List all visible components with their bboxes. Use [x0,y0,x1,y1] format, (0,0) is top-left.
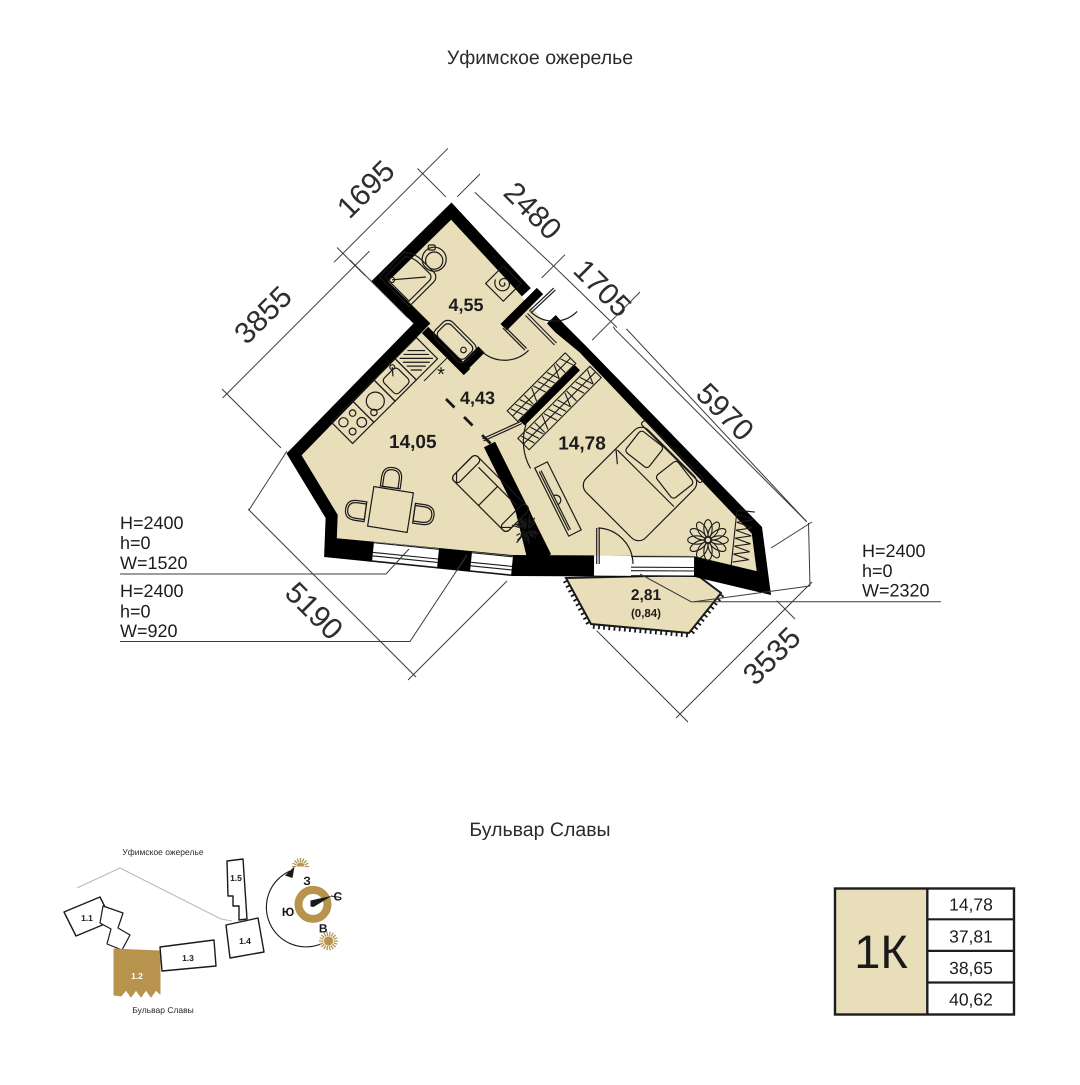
svg-text:1.5: 1.5 [230,873,242,883]
svg-text:Уфимское ожерелье: Уфимское ожерелье [122,847,203,857]
svg-text:Бульвар Славы: Бульвар Славы [132,1005,194,1015]
svg-text:W=1520: W=1520 [120,553,188,573]
svg-text:2,81: 2,81 [631,587,662,604]
svg-text:С: С [333,890,342,904]
svg-text:38,65: 38,65 [949,958,993,978]
svg-text:W=2320: W=2320 [862,581,930,601]
svg-text:1.3: 1.3 [182,953,194,963]
svg-text:h=0: h=0 [862,561,893,581]
svg-text:W=920: W=920 [120,621,178,641]
svg-text:1К: 1К [854,925,908,978]
svg-text:4,55: 4,55 [448,295,483,315]
svg-text:Бульвар Славы: Бульвар Славы [469,819,610,841]
svg-text:h=0: h=0 [120,533,151,553]
svg-text:Ю: Ю [282,905,294,919]
svg-text:(0,84): (0,84) [631,608,661,620]
svg-text:H=2400: H=2400 [120,513,184,533]
svg-text:H=2400: H=2400 [120,581,184,601]
svg-text:14,78: 14,78 [558,434,606,455]
svg-text:40,62: 40,62 [949,990,993,1010]
svg-text:1.1: 1.1 [81,913,93,923]
svg-text:*: * [437,364,445,386]
svg-text:1.2: 1.2 [131,971,143,981]
svg-text:14,78: 14,78 [949,895,993,915]
svg-text:H=2400: H=2400 [862,541,926,561]
svg-text:14,05: 14,05 [389,432,437,453]
svg-text:1.4: 1.4 [239,936,251,946]
svg-text:h=0: h=0 [120,602,151,622]
svg-text:З: З [303,874,311,888]
svg-text:Уфимское ожерелье: Уфимское ожерелье [447,47,633,69]
svg-text:37,81: 37,81 [949,926,993,946]
svg-text:4,43: 4,43 [460,388,495,408]
